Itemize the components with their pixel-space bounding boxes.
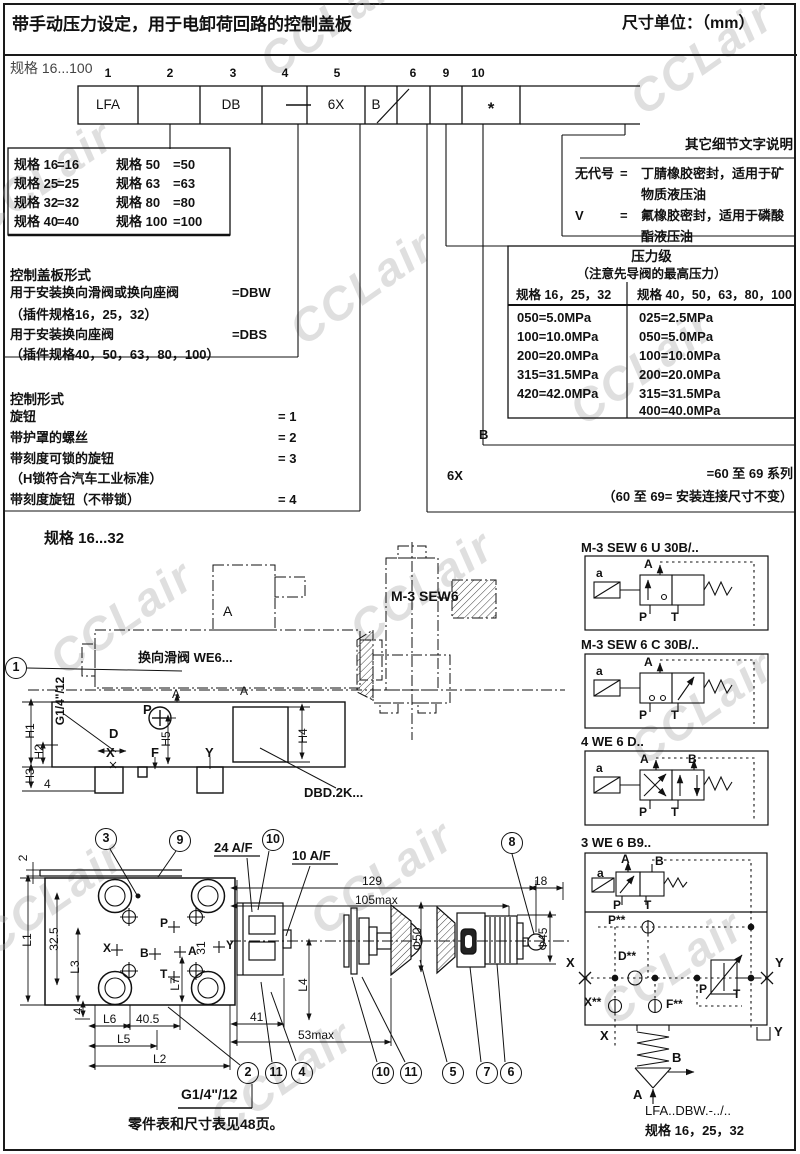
datasheet-page: CCLair CCLair CCLair CCLair CCLair CCLai… — [0, 0, 800, 1154]
seal-desc: 物质液压油 — [641, 187, 706, 203]
size-row-value: =63 — [173, 176, 195, 192]
position-number: 9 — [436, 66, 456, 81]
size-row-value: =50 — [173, 157, 195, 173]
size-row-label: 规格 25 — [14, 176, 58, 192]
sym-a: a — [596, 566, 603, 581]
callout-11b: 11 — [400, 1062, 422, 1084]
sym-T: T — [671, 805, 678, 820]
label-a-mid2: A — [240, 684, 248, 699]
dim-l5: L5 — [117, 1032, 130, 1047]
pressure-cell: 100=10.0MPa — [517, 329, 598, 345]
relief-p: P — [699, 982, 707, 997]
code-cell-db: DB — [200, 88, 262, 122]
size-row-label: 规格 16 — [14, 157, 58, 173]
dim-h5: H5 — [159, 719, 173, 759]
seal-eq: = — [620, 166, 628, 182]
dim-l7: L7 — [168, 964, 182, 1004]
callout-6: 6 — [500, 1062, 522, 1084]
pilot-schematic — [579, 920, 773, 1104]
callout-9: 9 — [169, 830, 191, 852]
control-title: 控制形式 — [10, 392, 64, 409]
port-y-right: Y — [775, 955, 784, 971]
size-range-label: 规格 16...100 — [10, 60, 93, 78]
control-row: 带护罩的螺丝 — [10, 430, 88, 446]
units-label: 尺寸单位：（mm） — [622, 14, 754, 34]
cover-value: =DBW — [232, 285, 271, 301]
sym-P: P — [639, 805, 647, 820]
dim-40-5: 40.5 — [136, 1012, 159, 1027]
size-row-value: =32 — [57, 195, 79, 211]
port-b: B — [140, 946, 149, 961]
dim-phi50: Φ50 — [410, 919, 424, 959]
sym-P: P — [613, 898, 621, 913]
seal-code: V — [575, 208, 584, 224]
g14-bottom-label: G1/4"/12 — [181, 1086, 237, 1104]
dim-f-label: F — [151, 745, 159, 761]
dim-l1: L1 — [20, 920, 34, 960]
port-p-label: P — [143, 702, 152, 718]
size-row-label: 规格 80 — [116, 195, 160, 211]
page-title: 带手动压力设定，用于电卸荷回路的控制盖板 — [12, 14, 352, 35]
pressure-cell: 200=20.0MPa — [517, 348, 598, 364]
dim-l3: L3 — [68, 947, 82, 987]
dim-4-label: 4 — [44, 777, 51, 792]
sym-B: B — [655, 854, 664, 869]
code-cell-6x: 6X — [307, 88, 365, 122]
orifice-dss: D** — [618, 949, 636, 964]
port-p: P — [160, 916, 168, 931]
dim-105max: 105max — [355, 893, 398, 908]
pressure-col1-header: 规格 16，25，32 — [516, 288, 611, 304]
control-row: （H锁符合汽车工业标准） — [10, 471, 162, 487]
af10-label: 10 A/F — [292, 848, 331, 864]
size-row-value: =100 — [173, 214, 202, 230]
dim-41: 41 — [250, 1010, 263, 1025]
sym-T: T — [671, 610, 678, 625]
dim-l6: L6 — [103, 1012, 116, 1027]
sym-a: a — [596, 664, 603, 679]
sym-a: a — [596, 761, 603, 776]
dim-53max: 53max — [298, 1028, 334, 1043]
pressure-cell: 100=10.0MPa — [639, 348, 720, 364]
seal-code: 无代号 — [575, 166, 614, 182]
sym-B: B — [688, 752, 697, 767]
dim-129: 129 — [362, 874, 382, 889]
control-value: = 3 — [278, 451, 296, 467]
af24-label: 24 A/F — [214, 840, 253, 856]
callout-3: 3 — [95, 828, 117, 850]
dim-4b: 4 — [71, 991, 85, 1031]
code-cell-b: B — [363, 88, 389, 122]
control-value: = 1 — [278, 409, 296, 425]
symbol-title-2: M-3 SEW 6 C 30B/.. — [581, 637, 699, 653]
g14-thread-label: G1/4"/12 — [53, 666, 67, 736]
code-b-label: B — [479, 427, 488, 443]
port-y: Y — [226, 938, 234, 953]
cover-row: （插件规格16，25，32） — [10, 307, 157, 323]
callout-1: 1 — [5, 657, 27, 679]
pressure-cell: 050=5.0MPa — [639, 329, 713, 345]
position-number: 1 — [98, 66, 118, 81]
callout-10b: 10 — [372, 1062, 394, 1084]
top-assembly-phantom — [28, 542, 565, 740]
sym-P: P — [639, 708, 647, 723]
pressure-cell: 400=40.0MPa — [639, 403, 720, 419]
orifice-fss: F** — [666, 997, 683, 1012]
orifice-pss: P** — [608, 913, 625, 928]
size-row-label: 规格 63 — [116, 176, 160, 192]
relief-t: T — [733, 987, 740, 1002]
cover-row: （插件规格40，50，63，80，100） — [10, 347, 220, 363]
label-a-top: A — [223, 603, 232, 621]
position-number: 2 — [160, 66, 180, 81]
control-row: 旋钮 — [10, 409, 36, 425]
sym-A: A — [644, 557, 653, 572]
size-row-label: 规格 50 — [116, 157, 160, 173]
size-row-label: 规格 40 — [14, 214, 58, 230]
callout-11: 11 — [265, 1062, 287, 1084]
code-cell-lfa: LFA — [78, 88, 138, 122]
dim-phi45: Φ45 — [536, 919, 550, 959]
pressure-cell: 025=2.5MPa — [639, 310, 713, 326]
seal-desc: 氟橡胶密封，适用于磷酸 — [641, 208, 784, 224]
port-b-label: B — [672, 1050, 681, 1066]
size-row-value: =80 — [173, 195, 195, 211]
cover-value: =DBS — [232, 327, 267, 343]
dim-18: 18 — [534, 874, 547, 889]
sym-A: A — [644, 655, 653, 670]
callout-8: 8 — [501, 832, 523, 854]
dim-l4: L4 — [296, 965, 310, 1005]
position-number: 5 — [327, 66, 347, 81]
callout-5: 5 — [442, 1062, 464, 1084]
callout-7: 7 — [476, 1062, 498, 1084]
code-cell-star: * — [462, 92, 520, 126]
sym-A: A — [621, 852, 630, 867]
dim-d-label: D — [109, 726, 118, 742]
sym-P: P — [639, 610, 647, 625]
port-a-label: A — [633, 1087, 642, 1103]
port-y-bottom: Y — [774, 1024, 783, 1040]
cover-row: 用于安装换向座阀 — [10, 327, 114, 343]
symbol-title-3: 4 WE 6 D.. — [581, 734, 644, 750]
control-row: 带刻度旋钮（不带锁） — [10, 492, 140, 508]
symbol-card-boxes — [585, 556, 768, 1025]
size-row-value: =40 — [57, 214, 79, 230]
port-x-left: X — [566, 955, 575, 971]
port-t: T — [160, 967, 167, 982]
dim-l2: L2 — [153, 1052, 166, 1067]
size-row-value: =25 — [57, 176, 79, 192]
seal-desc: 丁腈橡胶密封，适用于矿 — [641, 166, 784, 182]
callout-2: 2 — [237, 1062, 259, 1084]
size-row-value: =16 — [57, 157, 79, 173]
dbd-label: DBD.2K... — [304, 785, 363, 801]
port-x: X — [103, 941, 111, 956]
orifice-xss: X** — [584, 995, 601, 1010]
valve-ref-label: 换向滑阀 WE6... — [138, 650, 233, 666]
control-value: = 2 — [278, 430, 296, 446]
position-number: 10 — [468, 66, 488, 81]
dim-32-5: 32.5 — [47, 919, 61, 959]
pressure-title: 压力级 — [508, 249, 795, 266]
dim-h3: H3 — [23, 756, 37, 796]
size-row-label: 规格 32 — [14, 195, 58, 211]
pressure-subtitle: （注意先导阀的最高压力） — [508, 267, 795, 283]
callout-10: 10 — [262, 829, 284, 851]
parts-table-note: 零件表和尺寸表见48页。 — [128, 1116, 284, 1134]
position-number: 3 — [223, 66, 243, 81]
pressure-cell: 050=5.0MPa — [517, 310, 591, 326]
position-number: 4 — [275, 66, 295, 81]
cover-row: 用于安装换向滑阀或换向座阀 — [10, 285, 179, 301]
size-row-label: 规格 100 — [116, 214, 167, 230]
pressure-col2-header: 规格 40，50，63，80，100 — [637, 288, 792, 304]
label-a-mid: A — [172, 687, 180, 702]
model-size-line: 规格 16，25，32 — [645, 1123, 744, 1139]
port-x-bottom: X — [600, 1028, 609, 1044]
sym-T: T — [671, 708, 678, 723]
position-number: 6 — [403, 66, 423, 81]
series-line1: =60 至 69 系列 — [420, 466, 793, 482]
dim-h4: H4 — [296, 716, 310, 756]
pressure-cell: 315=31.5MPa — [517, 367, 598, 383]
cover-title: 控制盖板形式 — [10, 268, 91, 285]
seals-title: 其它细节文字说明 — [560, 137, 793, 154]
control-value: = 4 — [278, 492, 296, 508]
sym-a: a — [597, 866, 604, 881]
sym-A: A — [640, 752, 649, 767]
sew-label: M-3 SEW6 — [391, 588, 459, 606]
port-x-label: X — [106, 745, 115, 761]
pressure-cell: 200=20.0MPa — [639, 367, 720, 383]
model-code-line: LFA..DBW.-../.. — [645, 1103, 731, 1119]
seal-desc: 酯液压油 — [641, 229, 693, 245]
control-row: 带刻度可锁的旋钮 — [10, 451, 114, 467]
sym-T: T — [644, 898, 651, 913]
dim-2: 2 — [16, 838, 30, 878]
port-y-label: Y — [205, 745, 214, 761]
pressure-cell: 420=42.0MPa — [517, 386, 598, 402]
callout-4: 4 — [291, 1062, 313, 1084]
series-line2: （60 至 69= 安装连接尺寸不变） — [420, 489, 793, 505]
symbol-title-1: M-3 SEW 6 U 30B/.. — [581, 540, 699, 556]
dim-31: 31 — [194, 928, 208, 968]
symbol-title-4: 3 WE 6 B9.. — [581, 835, 651, 851]
seal-eq: = — [620, 208, 628, 224]
pressure-cell: 315=31.5MPa — [639, 386, 720, 402]
drawing-heading: 规格 16...32 — [44, 530, 124, 549]
